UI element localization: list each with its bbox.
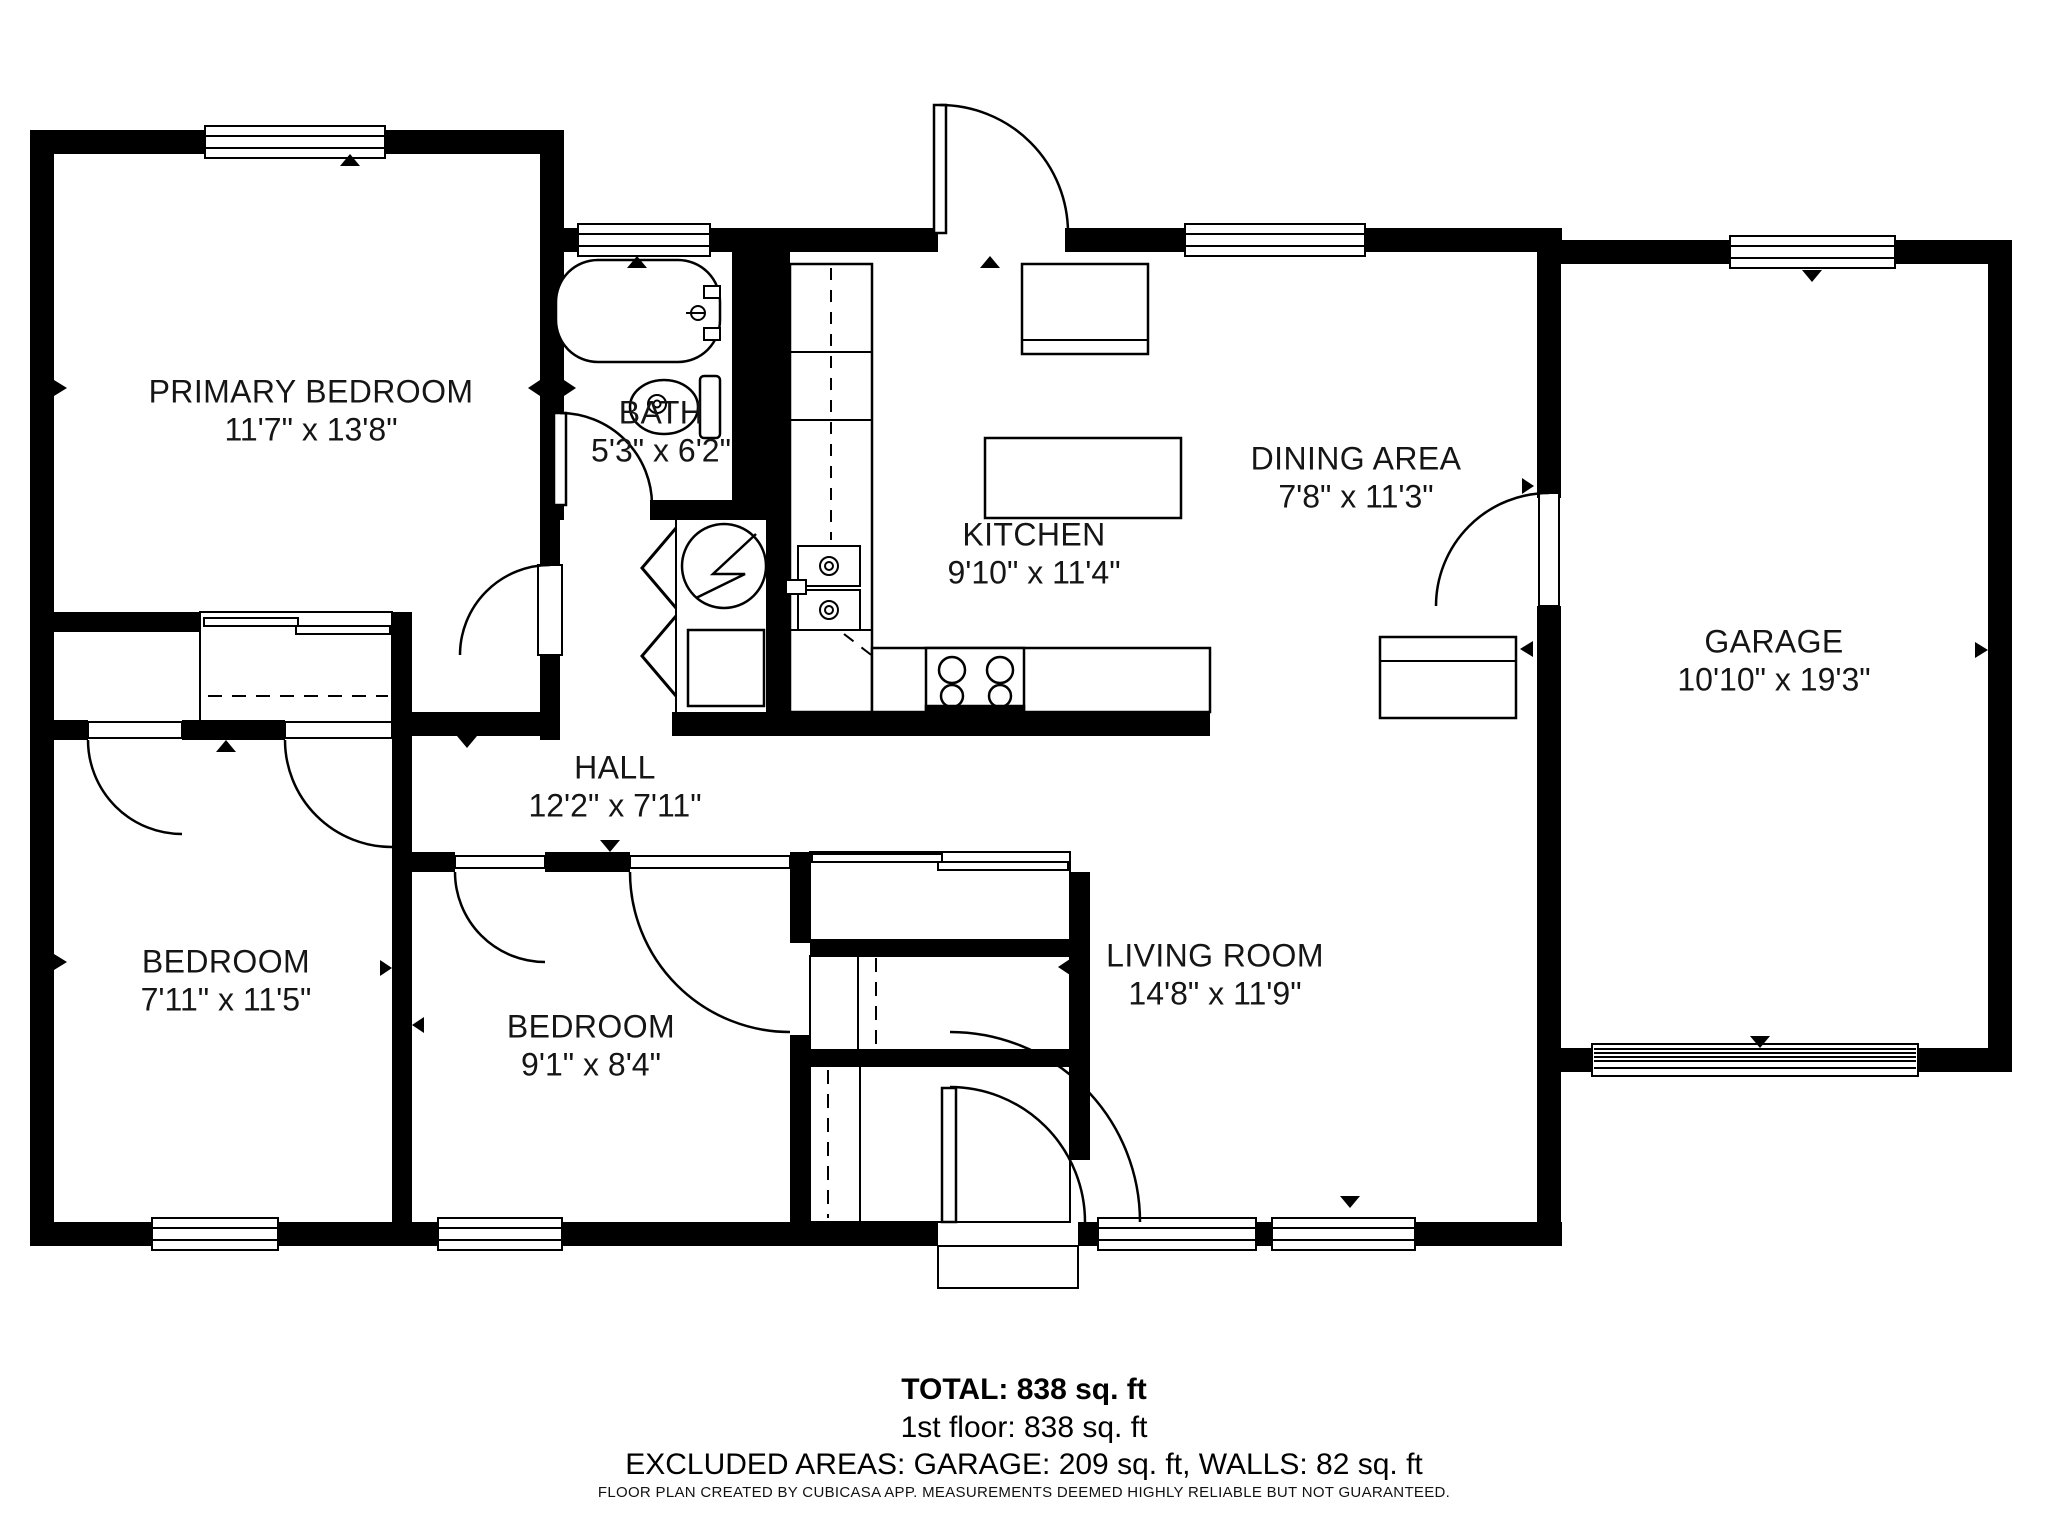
window-bath-top bbox=[578, 224, 710, 256]
room-dims: 10'10" x 19'3" bbox=[1677, 661, 1870, 699]
footer-disclaimer: FLOOR PLAN CREATED BY CUBICASA APP. MEAS… bbox=[598, 1484, 1450, 1501]
room-label-hall: HALL 12'2" x 7'11" bbox=[528, 749, 701, 825]
room-label-bedroom-middle: BEDROOM 9'1" x 8'4" bbox=[507, 1008, 675, 1084]
room-name: BEDROOM bbox=[141, 943, 312, 981]
window-dining-top bbox=[1185, 224, 1365, 256]
area-summary: TOTAL: 838 sq. ft 1st floor: 838 sq. ft … bbox=[625, 1371, 1423, 1484]
closet-hall-sliding bbox=[810, 852, 1070, 940]
floor-plan-page: PRIMARY BEDROOM 11'7" x 13'8" BATH 5'3" … bbox=[0, 0, 2048, 1536]
room-dims: 5'3" x 6'2" bbox=[591, 432, 731, 470]
room-label-garage: GARAGE 10'10" x 19'3" bbox=[1677, 623, 1870, 699]
room-label-bath: BATH 5'3" x 6'2" bbox=[591, 394, 731, 470]
window-bedroom-left-bottom bbox=[152, 1218, 278, 1250]
bathtub bbox=[556, 260, 720, 362]
first-floor-area: 1st floor: 838 sq. ft bbox=[625, 1409, 1423, 1447]
washer bbox=[688, 630, 764, 706]
kitchen-counter-south bbox=[872, 648, 1210, 712]
dining-counter bbox=[1380, 637, 1516, 718]
room-name: GARAGE bbox=[1677, 623, 1870, 661]
room-name: BATH bbox=[591, 394, 731, 432]
bedroom-middle-door-2 bbox=[630, 856, 790, 1032]
garage-door bbox=[1592, 1044, 1918, 1076]
floor-plan-drawing bbox=[0, 0, 2048, 1536]
room-dims: 9'10" x 11'4" bbox=[947, 554, 1120, 592]
closets bbox=[200, 520, 1070, 1222]
utility-closet-bifold-doors bbox=[642, 520, 676, 712]
window-living-room-bottom-1 bbox=[1098, 1218, 1256, 1250]
window-bedroom-middle-bottom bbox=[438, 1218, 562, 1250]
room-name: LIVING ROOM bbox=[1106, 937, 1324, 975]
primary-bedroom-door bbox=[460, 565, 562, 655]
total-area: TOTAL: 838 sq. ft bbox=[625, 1371, 1423, 1409]
room-dims: 7'11" x 11'5" bbox=[141, 981, 312, 1019]
room-dims: 7'8" x 11'3" bbox=[1251, 478, 1462, 516]
room-dims: 11'7" x 13'8" bbox=[149, 411, 474, 449]
window-primary-bedroom-top bbox=[205, 126, 385, 158]
closet-bedroom-middle bbox=[810, 956, 1070, 1050]
excluded-areas: EXCLUDED AREAS: GARAGE: 209 sq. ft, WALL… bbox=[625, 1446, 1423, 1484]
closet-primary-sliding bbox=[200, 612, 392, 722]
room-label-dining-area: DINING AREA 7'8" x 11'3" bbox=[1251, 440, 1462, 516]
utility-fixtures bbox=[682, 524, 766, 706]
room-label-bedroom-left: BEDROOM 7'11" x 11'5" bbox=[141, 943, 312, 1019]
room-name: PRIMARY BEDROOM bbox=[149, 373, 474, 411]
window-living-room-bottom-2 bbox=[1272, 1218, 1415, 1250]
room-name: DINING AREA bbox=[1251, 440, 1462, 478]
room-label-kitchen: KITCHEN 9'10" x 11'4" bbox=[947, 516, 1120, 592]
refrigerator bbox=[1022, 264, 1148, 354]
room-dims: 9'1" x 8'4" bbox=[507, 1046, 675, 1084]
bedroom-middle-door-1 bbox=[455, 856, 545, 962]
room-dims: 14'8" x 11'9" bbox=[1106, 975, 1324, 1013]
stove bbox=[926, 648, 1024, 712]
room-name: BEDROOM bbox=[507, 1008, 675, 1046]
bedroom-left-door-2 bbox=[285, 722, 392, 847]
bedroom-left-door-1 bbox=[88, 722, 182, 834]
closet-entry bbox=[810, 1066, 1070, 1222]
entry-door-top bbox=[934, 105, 1068, 233]
room-name: KITCHEN bbox=[947, 516, 1120, 554]
kitchen-island bbox=[985, 438, 1181, 518]
room-label-living-room: LIVING ROOM 14'8" x 11'9" bbox=[1106, 937, 1324, 1013]
porch-step bbox=[938, 1246, 1078, 1288]
room-dims: 12'2" x 7'11" bbox=[528, 787, 701, 825]
room-name: HALL bbox=[528, 749, 701, 787]
room-label-primary-bedroom: PRIMARY BEDROOM 11'7" x 13'8" bbox=[149, 373, 474, 449]
window-garage-top bbox=[1730, 236, 1895, 268]
